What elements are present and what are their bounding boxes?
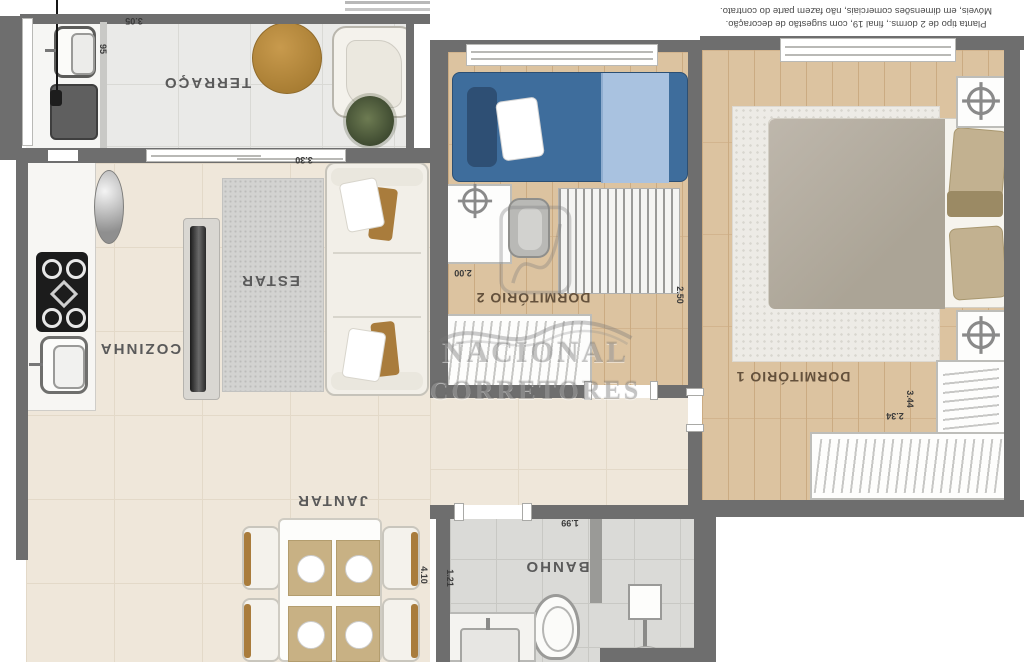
- service-divider: [100, 22, 107, 148]
- bed-single-pillow: [495, 96, 545, 161]
- round-decor: [94, 170, 124, 244]
- facade-line: [345, 1, 430, 4]
- placemat: [336, 606, 380, 662]
- bedroom2-window: [466, 44, 658, 66]
- leader-dot: [50, 90, 62, 106]
- service-window: [22, 18, 33, 146]
- bathroom-faucet: [486, 618, 490, 630]
- burner: [66, 308, 86, 328]
- burner: [42, 259, 62, 279]
- kitchen-door-opening: [48, 150, 78, 161]
- kitchen-sink: [40, 336, 88, 394]
- wall: [0, 16, 22, 160]
- door-frame: [686, 424, 704, 432]
- facade-line: [345, 8, 430, 11]
- room-label-terraco: TERRAÇO: [142, 70, 272, 96]
- wall: [20, 14, 430, 24]
- room-label-jantar: JANTAR: [286, 488, 378, 514]
- toilet-seat: [542, 606, 574, 652]
- wall: [693, 500, 1024, 517]
- dim-dorm2-width: 2.00: [444, 266, 482, 280]
- sofa: [325, 162, 429, 396]
- bathroom-sink-basin: [460, 628, 520, 662]
- dim-dorm1-width: 2.34: [876, 408, 914, 424]
- dim-estar-width: 3.30: [284, 154, 324, 167]
- hall-floor: [430, 385, 698, 515]
- bedroom1-wardrobe-bottom: [810, 432, 1006, 500]
- room-label-estar: ESTAR: [228, 268, 312, 294]
- kitchen-sink-basin: [53, 345, 85, 389]
- dim-terraco-width: 3.05: [112, 14, 156, 28]
- bathroom-sink-counter: [446, 612, 536, 662]
- disclaimer-text: Planta tipo de 2 dorms., final 19, com s…: [695, 4, 1017, 30]
- sofa-seat-divider: [333, 252, 421, 254]
- floor-plan: TERRAÇO ESTAR COZINHA JANTAR DORMITÓRIO …: [0, 0, 1024, 662]
- sofa-pillow-white: [341, 327, 386, 382]
- placemat: [288, 606, 332, 662]
- sofa-seat-divider: [333, 316, 421, 318]
- desk-chair: [508, 198, 550, 258]
- room-label-dormitorio2: DORMITÓRIO 2: [468, 286, 598, 310]
- cooktop: [36, 252, 88, 332]
- dim-jantar-length: 4.10: [403, 567, 445, 583]
- cooktop-knob: [50, 280, 78, 308]
- kitchen-faucet: [29, 363, 43, 366]
- door-frame: [522, 503, 532, 521]
- bedroom1-door-opening: [688, 392, 702, 428]
- room-label-dormitorio1: DORMITÓRIO 1: [726, 364, 860, 390]
- shower-head: [628, 584, 662, 620]
- bedroom1-window: [780, 38, 956, 62]
- burner: [66, 259, 86, 279]
- tv: [190, 226, 206, 392]
- bed-single-bolster: [467, 87, 497, 167]
- dim-dorm1-depth: 3.44: [893, 391, 927, 407]
- terrace-plant: [346, 96, 394, 146]
- wall: [688, 428, 702, 505]
- wall: [430, 385, 590, 398]
- dim-dorm2-depth: 2.50: [661, 287, 699, 303]
- wall: [430, 52, 448, 385]
- bedroom2-rug: [558, 188, 680, 294]
- bed-double: [768, 118, 1008, 308]
- wardrobe-clothes: [943, 364, 999, 430]
- bed-double-pillow: [949, 225, 1008, 301]
- bed-double-throw: [947, 191, 1003, 217]
- dining-chair: [242, 526, 280, 590]
- wall: [406, 20, 414, 150]
- dim-banho-width: 1.99: [550, 516, 590, 531]
- door-frame: [454, 503, 464, 521]
- door-frame: [650, 381, 658, 400]
- dim-terraco-depth: 95: [88, 42, 118, 56]
- room-label-cozinha: COZINHA: [92, 336, 188, 362]
- wall: [694, 500, 716, 662]
- bedroom2-door-opening: [590, 385, 652, 398]
- wardrobe-clothes: [447, 321, 589, 385]
- fan-symbol-icon: [960, 80, 1002, 122]
- placemat: [288, 540, 332, 596]
- dining-chair: [242, 598, 280, 662]
- wardrobe-clothes: [814, 439, 1003, 493]
- bedroom1-wardrobe-side: [936, 360, 1006, 434]
- wall: [688, 44, 702, 392]
- bedroom2-wardrobe: [444, 314, 592, 392]
- room-label-banho: BANHO: [518, 554, 596, 580]
- toilet: [532, 586, 580, 662]
- placemat: [336, 540, 380, 596]
- door-frame: [584, 381, 592, 400]
- bed-single: [452, 72, 688, 182]
- fan-symbol-icon: [452, 182, 498, 220]
- bed-double-duvet: [769, 119, 945, 309]
- dining-table: [278, 518, 382, 662]
- door-frame: [686, 388, 704, 396]
- bathroom-door-opening: [460, 505, 524, 519]
- wall: [16, 148, 28, 560]
- wall: [436, 515, 450, 662]
- fan-symbol-icon: [960, 314, 1002, 356]
- wall: [1004, 36, 1020, 512]
- dining-chair: [382, 598, 420, 662]
- bed-single-throw: [601, 73, 669, 183]
- disclaimer-line1: Planta tipo de 2 dorms., final 19, com s…: [695, 17, 1017, 30]
- burner: [42, 308, 62, 328]
- disclaimer-line2: Móveis, em dimensões comerciais, não faz…: [695, 4, 1017, 17]
